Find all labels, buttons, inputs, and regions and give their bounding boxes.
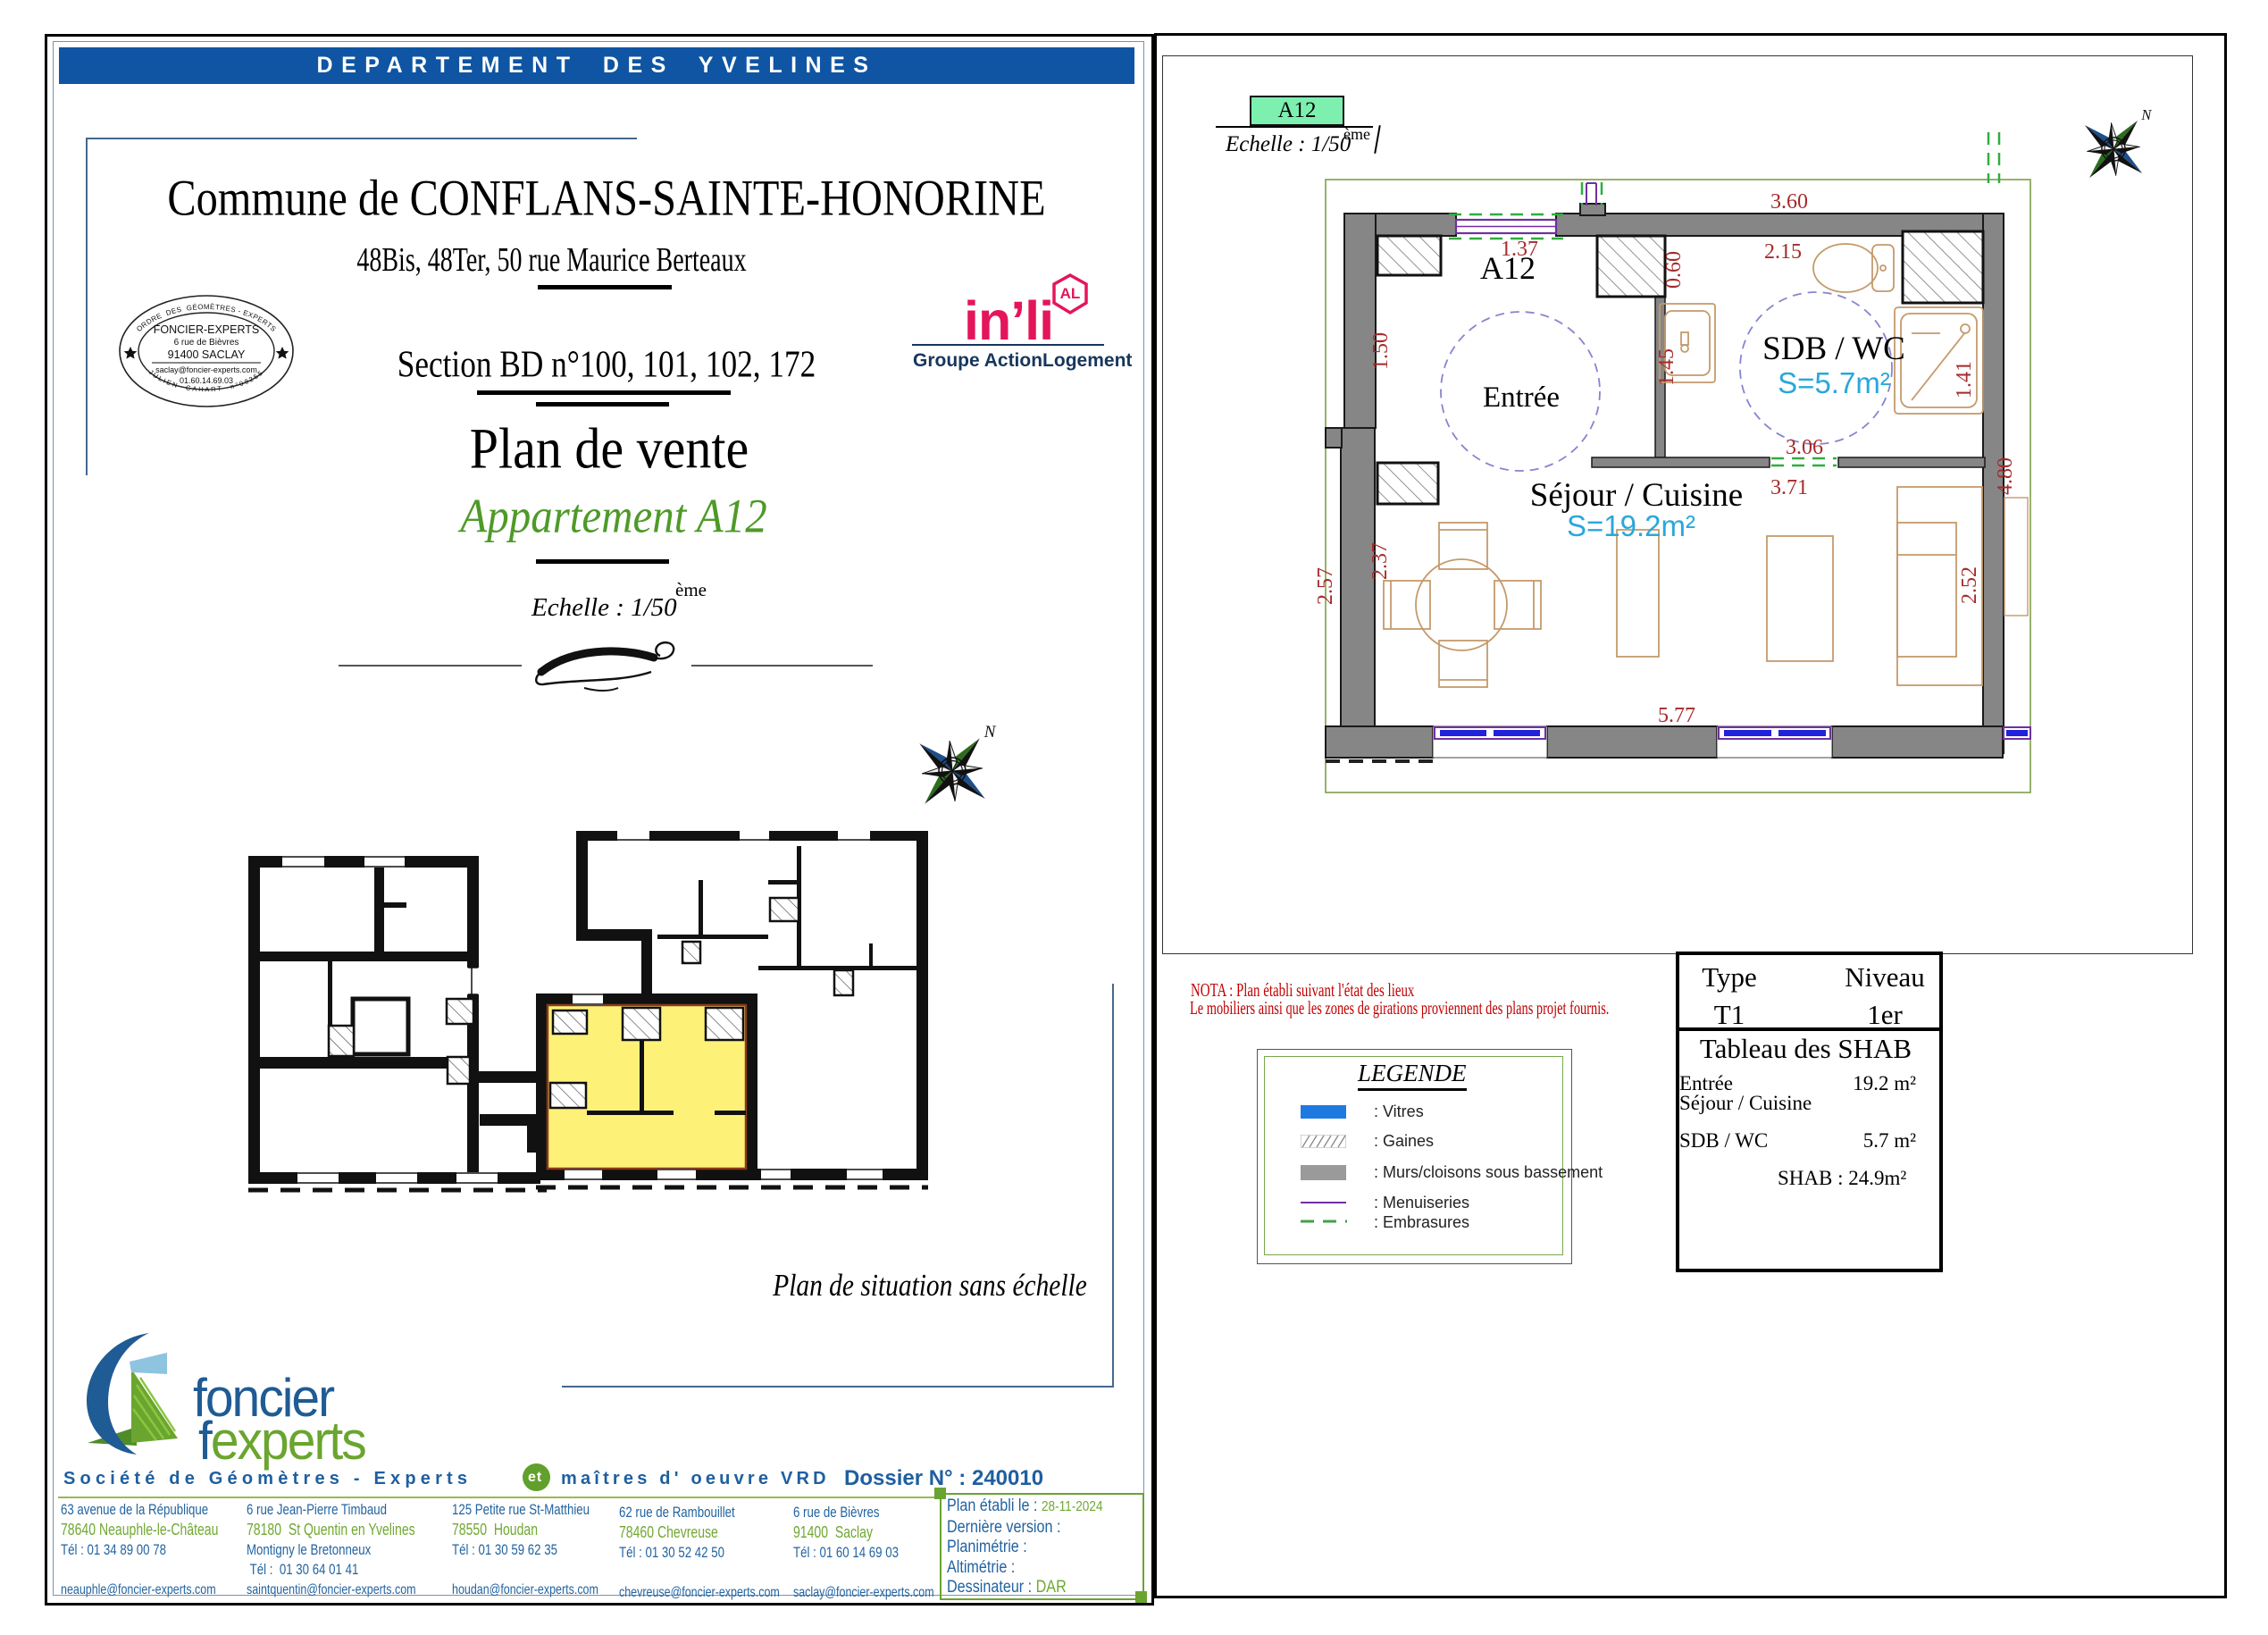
svg-text:2.57: 2.57 xyxy=(1314,567,1337,605)
svg-text:1.37: 1.37 xyxy=(1501,238,1538,261)
svg-text:4.80: 4.80 xyxy=(1994,457,2017,495)
svg-text:0.60: 0.60 xyxy=(1662,251,1686,289)
svg-text:2.37: 2.37 xyxy=(1368,542,1392,580)
svg-text:3.06: 3.06 xyxy=(1786,436,1823,459)
svg-text:2.15: 2.15 xyxy=(1764,240,1802,264)
svg-text:3.71: 3.71 xyxy=(1770,476,1808,499)
svg-text:Entrée: Entrée xyxy=(1483,381,1560,414)
svg-text:1.50: 1.50 xyxy=(1369,332,1393,370)
svg-text:5.77: 5.77 xyxy=(1658,704,1695,727)
svg-text:N: N xyxy=(983,723,997,742)
svg-text:AL: AL xyxy=(1060,285,1081,302)
svg-text:6 rue de Bièvres: 6 rue de Bièvres xyxy=(174,338,239,348)
svg-text:S=5.7m²: S=5.7m² xyxy=(1778,366,1890,399)
svg-text:S=19.2m²: S=19.2m² xyxy=(1567,509,1695,542)
svg-text:01.60.14.69.03: 01.60.14.69.03 xyxy=(180,376,233,385)
svg-text:Séjour / Cuisine: Séjour / Cuisine xyxy=(1530,477,1743,514)
svg-text:SDB / WC: SDB / WC xyxy=(1762,331,1905,367)
svg-text:2.52: 2.52 xyxy=(1958,566,1981,604)
svg-text:3.60: 3.60 xyxy=(1770,190,1808,214)
svg-text:91400 SACLAY: 91400 SACLAY xyxy=(168,348,246,361)
svg-text:FONCIER-EXPERTS: FONCIER-EXPERTS xyxy=(154,323,260,336)
svg-text:saclay@foncier-experts.com: saclay@foncier-experts.com xyxy=(155,365,257,374)
svg-text:1.45: 1.45 xyxy=(1655,348,1678,386)
svg-text:1.41: 1.41 xyxy=(1953,361,1976,398)
